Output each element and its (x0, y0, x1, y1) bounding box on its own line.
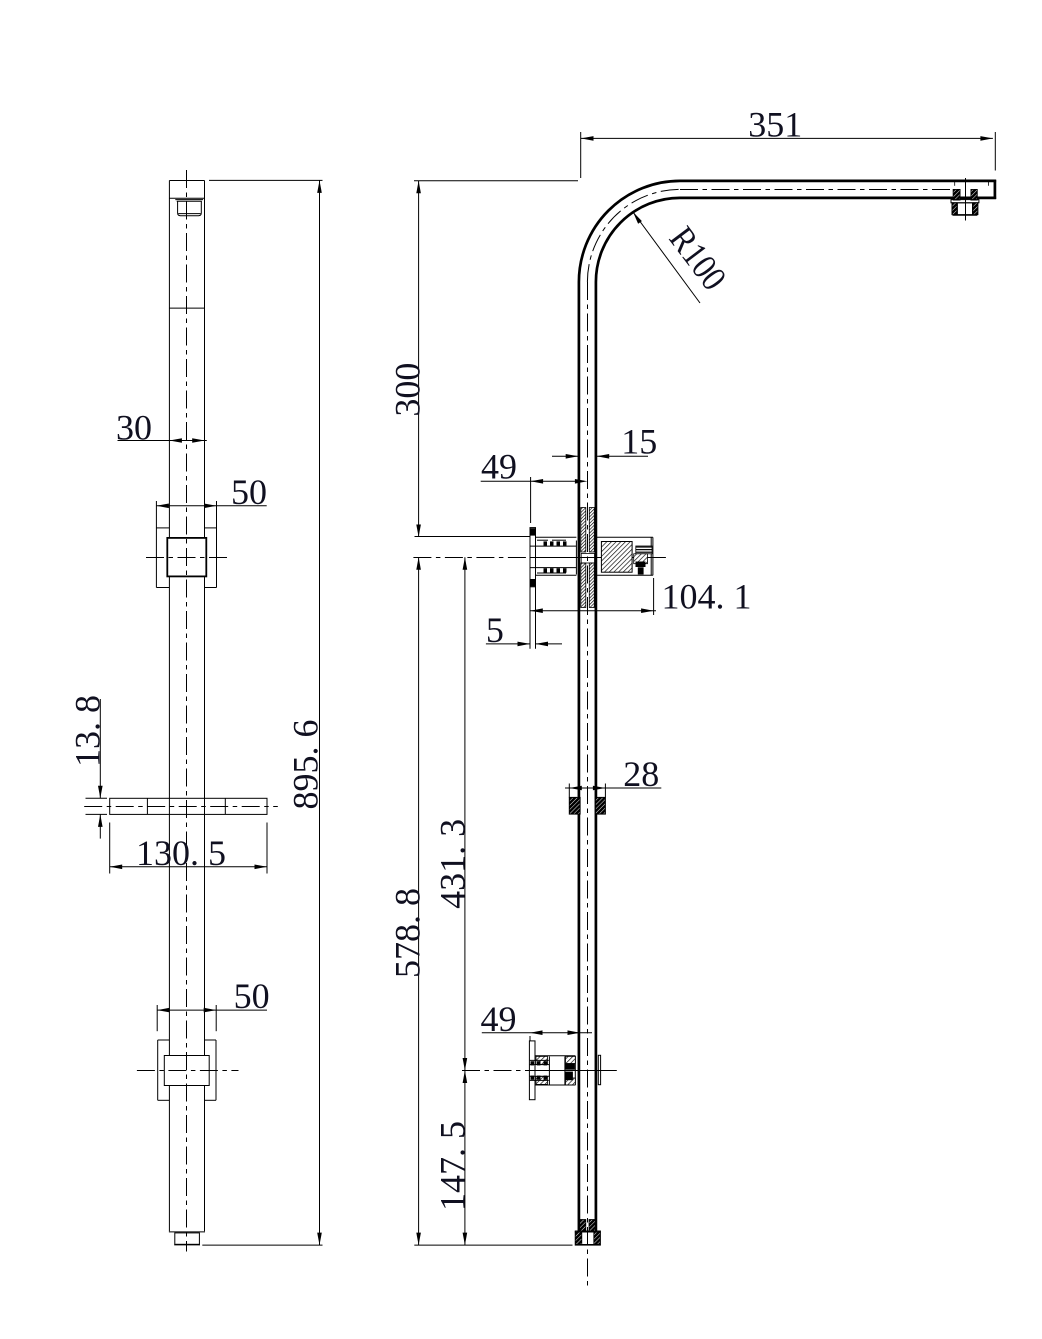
svg-text:49: 49 (481, 999, 517, 1039)
svg-text:28: 28 (623, 754, 659, 794)
svg-text:130. 5: 130. 5 (136, 833, 226, 873)
svg-text:578. 8: 578. 8 (388, 888, 428, 978)
svg-text:30: 30 (116, 407, 152, 447)
svg-text:147. 5: 147. 5 (433, 1121, 473, 1211)
svg-text:50: 50 (234, 976, 270, 1016)
svg-text:431. 3: 431. 3 (433, 819, 473, 909)
svg-text:49: 49 (481, 447, 517, 487)
svg-text:5: 5 (486, 610, 504, 650)
svg-text:895. 6: 895. 6 (286, 720, 326, 810)
svg-text:15: 15 (621, 422, 657, 462)
svg-text:50: 50 (231, 472, 267, 512)
svg-text:104. 1: 104. 1 (662, 576, 752, 616)
svg-text:351: 351 (748, 105, 802, 145)
svg-text:13. 8: 13. 8 (68, 695, 108, 767)
svg-text:300: 300 (388, 363, 428, 417)
